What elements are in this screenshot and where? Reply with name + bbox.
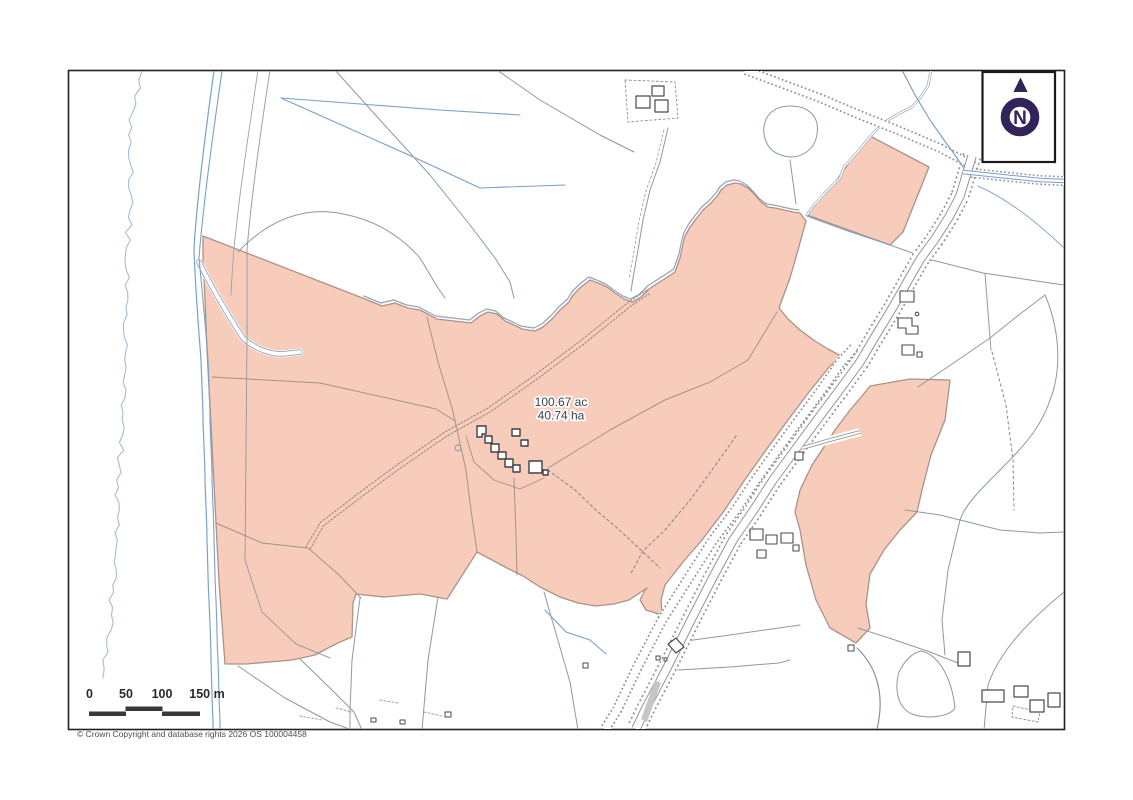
- svg-text:N: N: [1013, 108, 1027, 129]
- svg-text:50: 50: [119, 687, 133, 701]
- svg-text:0: 0: [86, 687, 93, 701]
- svg-text:© Crown Copyright and database: © Crown Copyright and database rights 20…: [77, 729, 307, 739]
- svg-text:150 m: 150 m: [189, 687, 224, 701]
- svg-text:100.67 ac: 100.67 ac: [535, 395, 588, 409]
- svg-text:100: 100: [152, 687, 173, 701]
- svg-text:40.74 ha: 40.74 ha: [538, 409, 585, 423]
